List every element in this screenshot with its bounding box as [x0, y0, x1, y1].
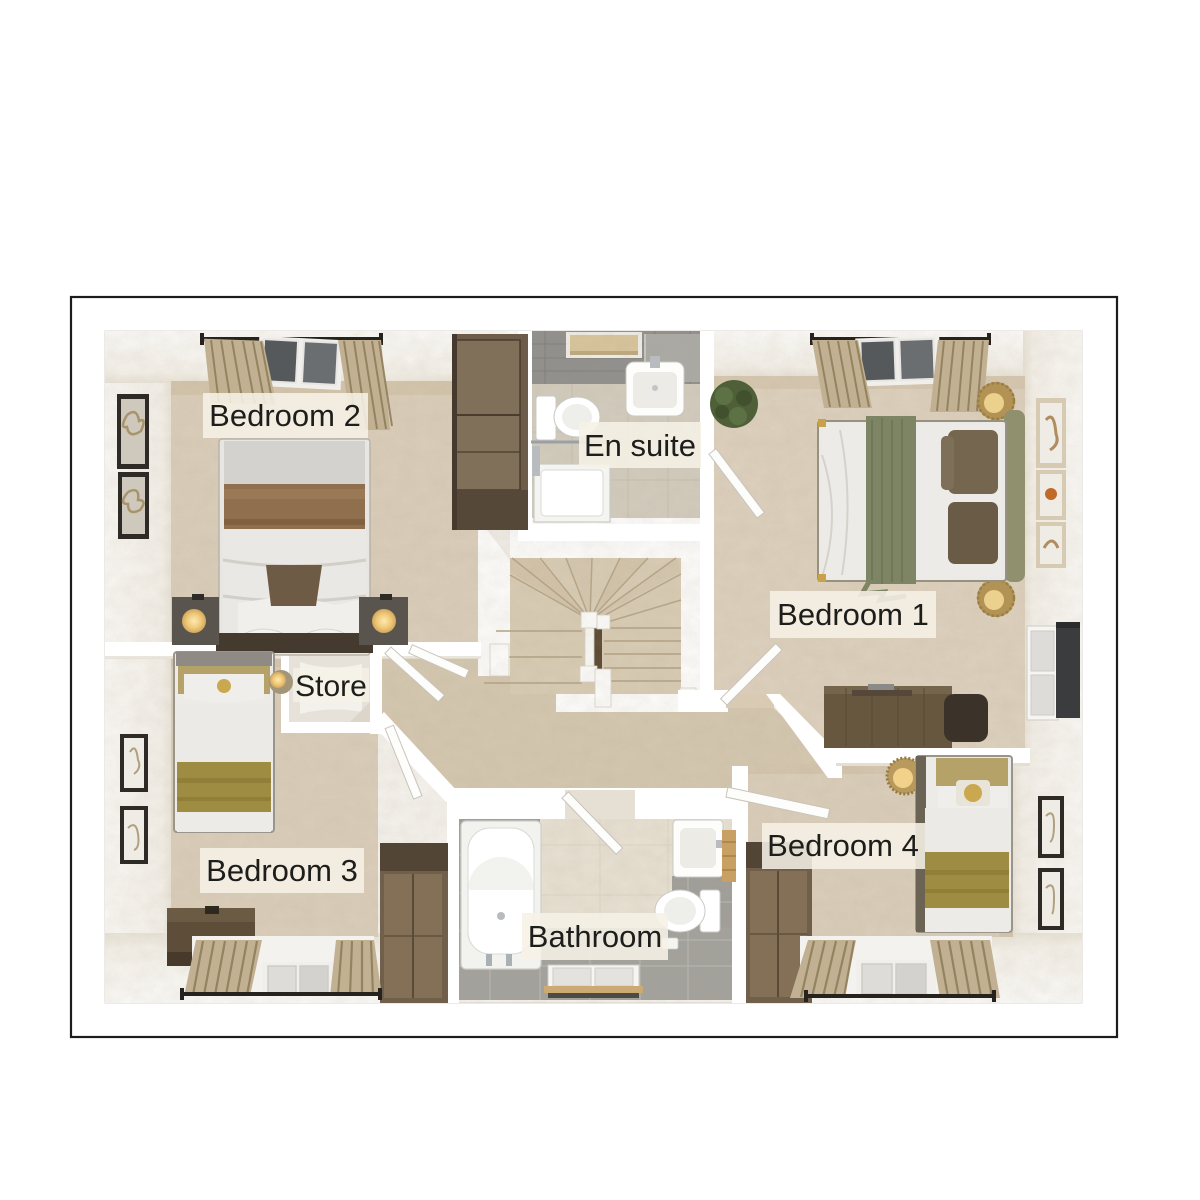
- svg-text:Bedroom 4: Bedroom 4: [767, 828, 919, 863]
- svg-text:Store: Store: [295, 670, 367, 703]
- svg-text:Bedroom 2: Bedroom 2: [209, 398, 361, 433]
- svg-text:Bedroom 1: Bedroom 1: [777, 597, 929, 632]
- svg-text:En suite: En suite: [584, 428, 696, 463]
- svg-text:Bedroom 3: Bedroom 3: [206, 853, 358, 888]
- svg-text:Bathroom: Bathroom: [528, 919, 662, 954]
